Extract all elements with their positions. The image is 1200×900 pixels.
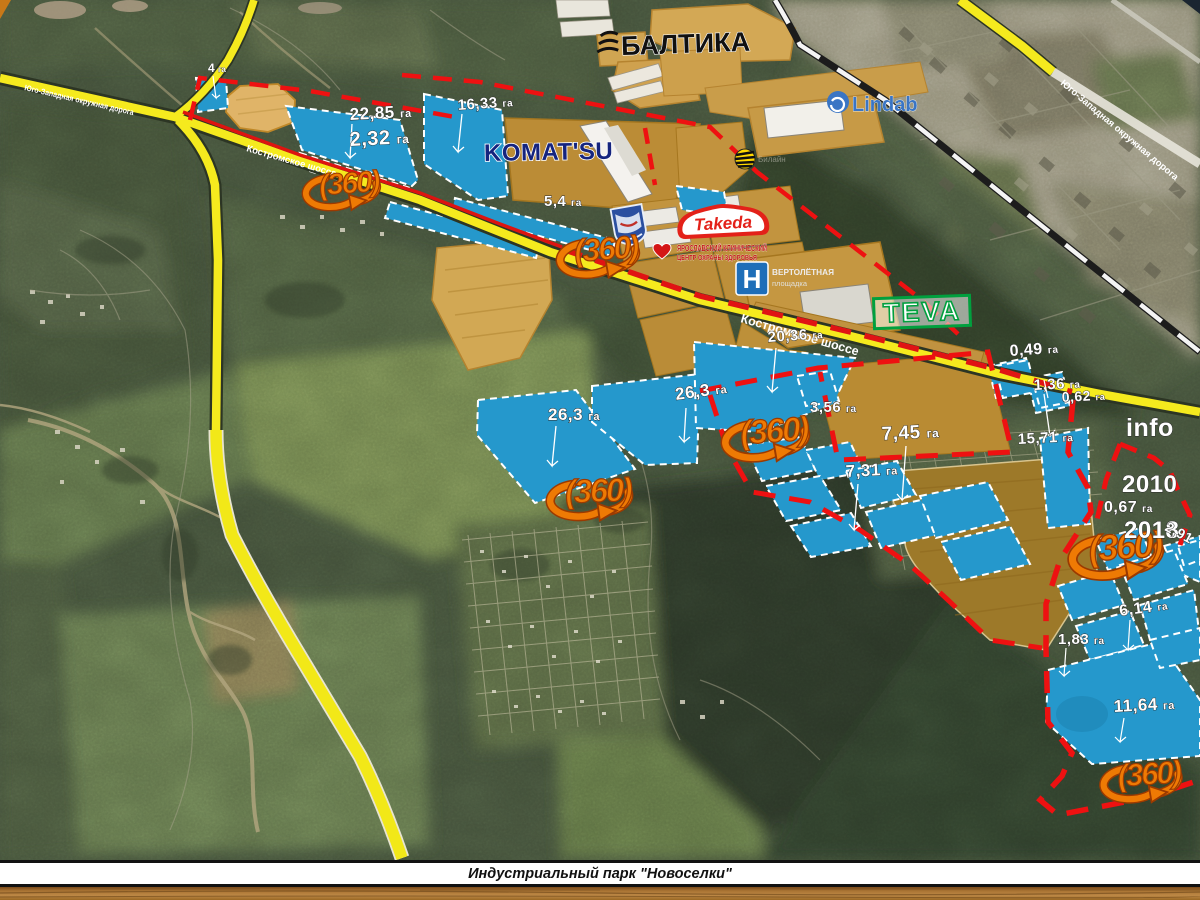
svg-text:Билайн: Билайн (758, 155, 786, 164)
svg-text:Lindab: Lindab (852, 94, 918, 116)
svg-text:ЦЕНТР ОХРАНЫ ЗДОРОВЬЯ: ЦЕНТР ОХРАНЫ ЗДОРОВЬЯ (677, 255, 757, 262)
svg-text:KOMAT'SU: KOMAT'SU (484, 138, 614, 167)
svg-text:ЯРОСЛАВСКИЙ КЛИНИЧЕСКИЙ: ЯРОСЛАВСКИЙ КЛИНИЧЕСКИЙ (677, 244, 767, 253)
svg-text:H: H (743, 264, 762, 294)
svg-text:Индустриальный парк "Новоселки: Индустриальный парк "Новоселки" (468, 866, 733, 882)
svg-text:БАЛТИКА: БАЛТИКА (621, 27, 751, 61)
svg-text:Takeda: Takeda (694, 212, 753, 234)
svg-text:2010: 2010 (1122, 471, 1177, 498)
svg-text:info: info (1126, 414, 1174, 442)
svg-text:TEVA: TEVA (882, 296, 961, 329)
svg-text:площадка: площадка (772, 279, 808, 288)
svg-text:ВЕРТОЛЁТНАЯ: ВЕРТОЛЁТНАЯ (772, 267, 834, 277)
